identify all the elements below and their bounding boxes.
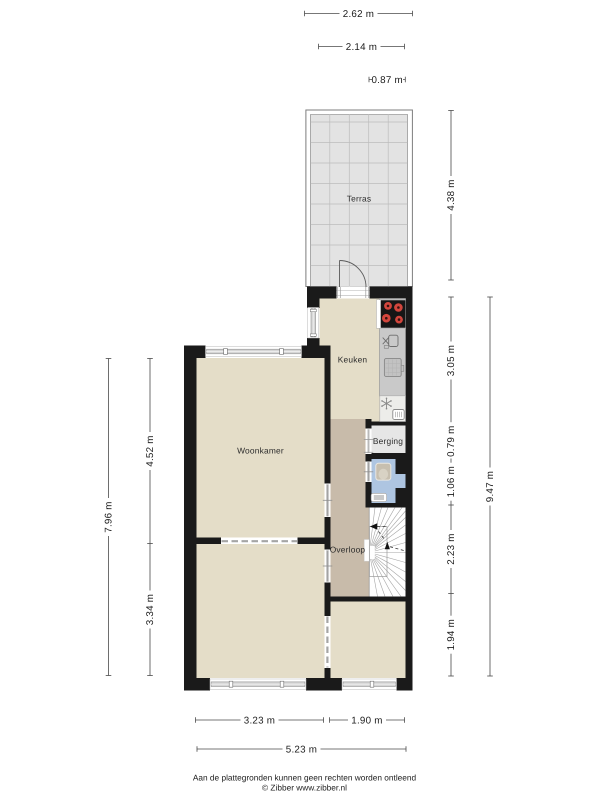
svg-text:Overloop: Overloop	[330, 545, 366, 555]
svg-text:3.34 m: 3.34 m	[145, 594, 156, 625]
svg-text:Aan de plattegronden kunnen ge: Aan de plattegronden kunnen geen rechten…	[193, 773, 417, 783]
svg-text:Terras: Terras	[347, 194, 371, 204]
svg-text:9.47 m: 9.47 m	[485, 471, 496, 502]
svg-text:Keuken: Keuken	[338, 355, 368, 365]
svg-text:Woonkamer: Woonkamer	[237, 446, 284, 456]
svg-text:7.96 m: 7.96 m	[104, 501, 115, 532]
svg-text:1.90 m: 1.90 m	[351, 716, 382, 727]
svg-text:0.87 m: 0.87 m	[371, 75, 402, 86]
svg-text:3.05 m: 3.05 m	[446, 345, 457, 376]
svg-text:1.94 m: 1.94 m	[446, 619, 457, 650]
svg-text:1.06 m: 1.06 m	[446, 466, 457, 497]
svg-text:2.14 m: 2.14 m	[346, 42, 377, 53]
svg-text:2.23 m: 2.23 m	[446, 533, 457, 564]
svg-text:0.79 m: 0.79 m	[446, 425, 457, 456]
svg-text:Berging: Berging	[373, 436, 403, 446]
svg-text:4.52 m: 4.52 m	[145, 435, 156, 466]
svg-text:2.62 m: 2.62 m	[343, 9, 374, 20]
svg-text:4.38 m: 4.38 m	[446, 179, 457, 210]
svg-text:© Zibber www.zibber.nl: © Zibber www.zibber.nl	[262, 783, 347, 793]
svg-text:5.23 m: 5.23 m	[286, 745, 317, 756]
svg-text:3.23 m: 3.23 m	[244, 716, 275, 727]
